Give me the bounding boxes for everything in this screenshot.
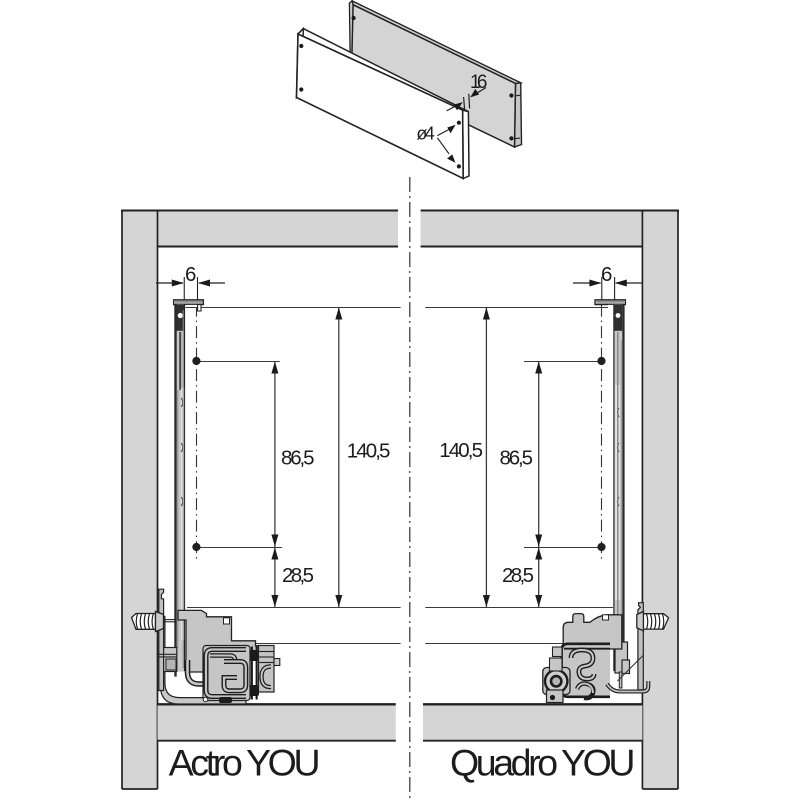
svg-text:28,5: 28,5	[282, 564, 314, 587]
svg-text:140,5: 140,5	[347, 439, 391, 462]
svg-text:86,5: 86,5	[500, 447, 534, 470]
svg-text:16: 16	[470, 72, 488, 93]
svg-text:Quadro YOU: Quadro YOU	[450, 742, 636, 784]
svg-text:6: 6	[601, 263, 612, 286]
svg-text:ø4: ø4	[416, 124, 434, 144]
svg-text:140,5: 140,5	[439, 439, 483, 462]
svg-text:86,5: 86,5	[281, 447, 315, 470]
svg-text:28,5: 28,5	[502, 564, 534, 587]
svg-text:6: 6	[185, 263, 196, 286]
svg-text:Actro YOU: Actro YOU	[169, 742, 321, 784]
